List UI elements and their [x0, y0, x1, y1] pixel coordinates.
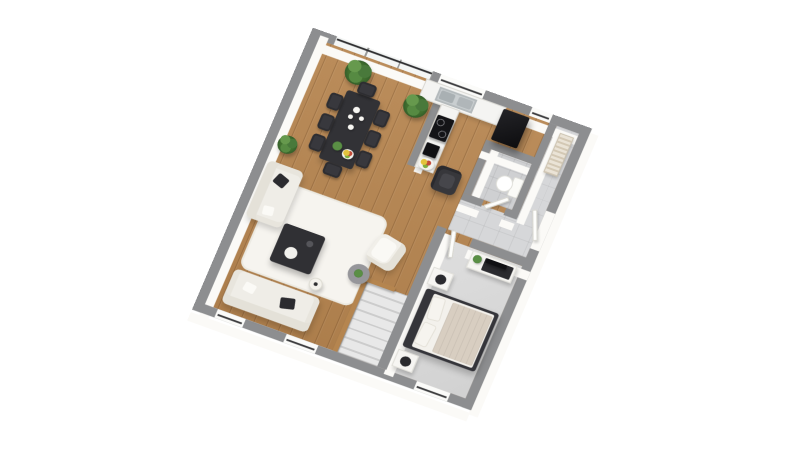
floor-plan-scene — [0, 0, 799, 450]
entry-door-leaf — [532, 210, 537, 241]
floor-plan-3d — [192, 28, 592, 411]
